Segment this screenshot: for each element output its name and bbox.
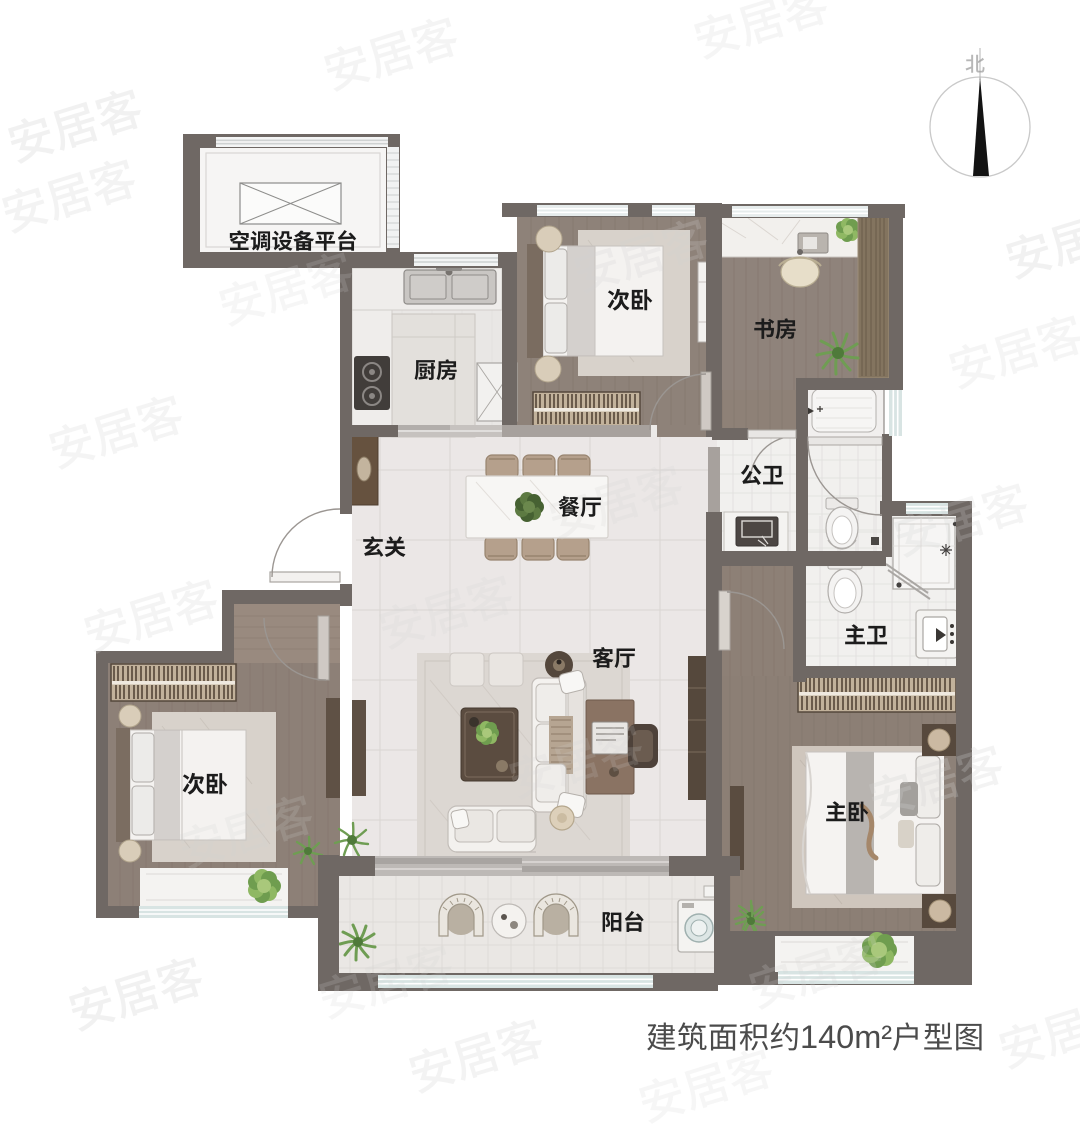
svg-text:140m²: 140m² [800,1019,892,1055]
